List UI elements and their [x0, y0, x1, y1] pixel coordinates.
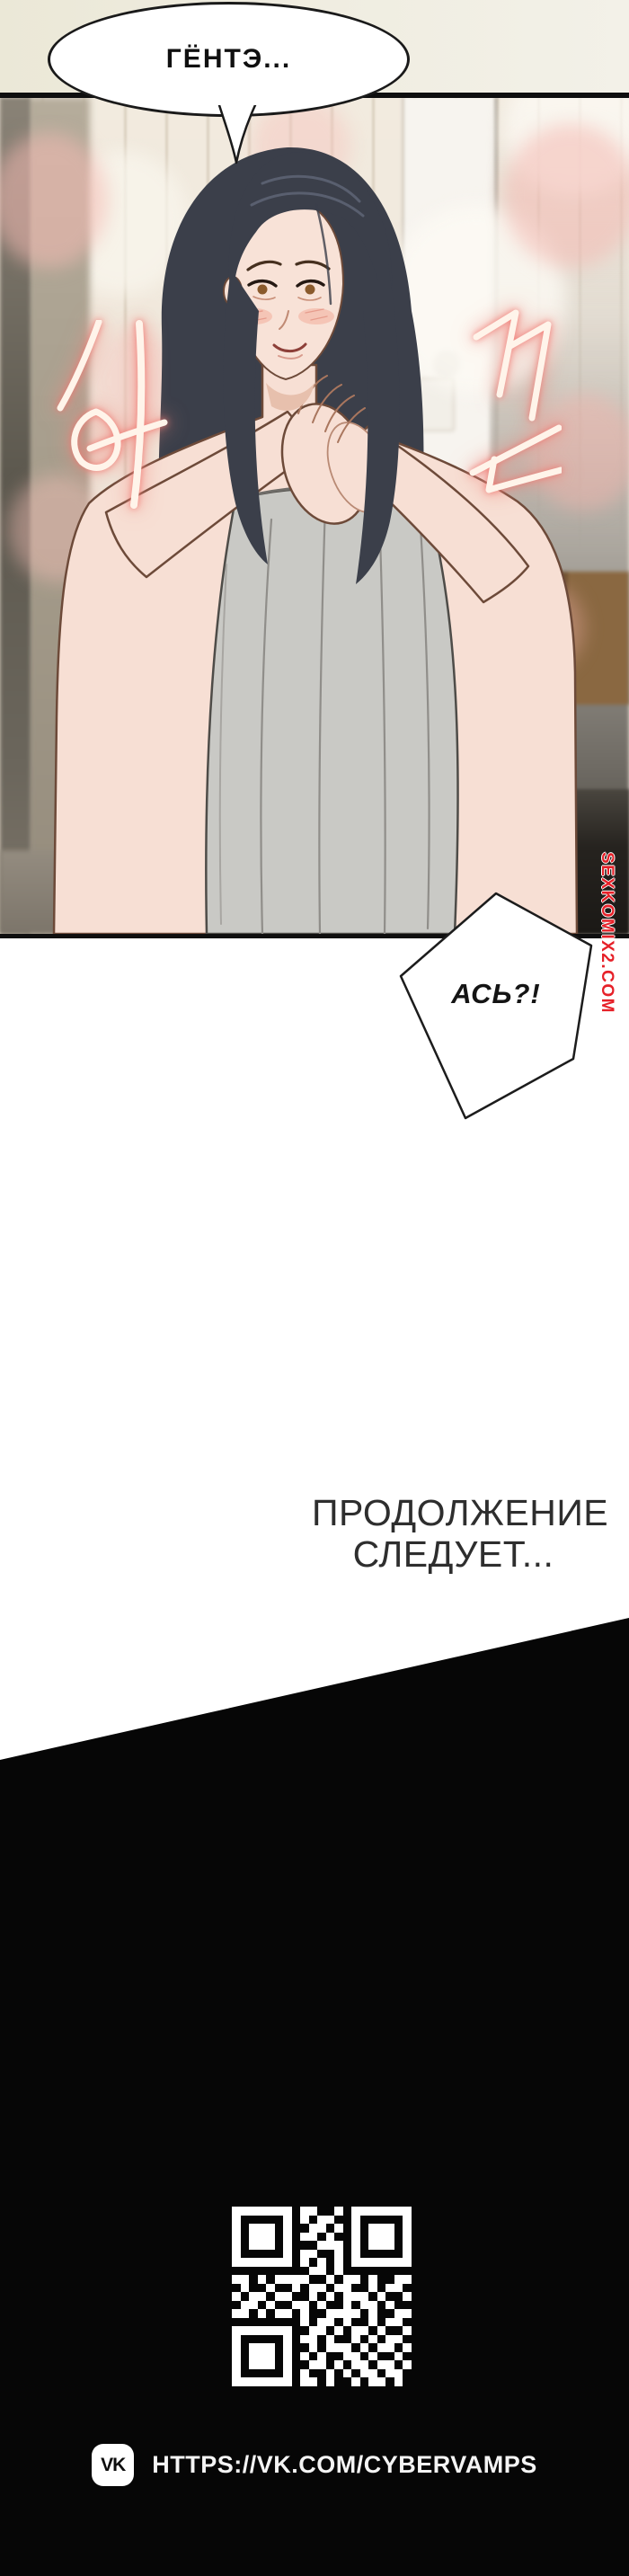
- vk-icon: VK: [92, 2444, 134, 2486]
- speech-bubble-top-text: ГЁНТЭ...: [166, 44, 291, 75]
- character-illustration: [0, 97, 629, 934]
- qr-code: [232, 2207, 412, 2386]
- speech-bubble-top: ГЁНТЭ...: [48, 2, 410, 117]
- vk-url-text: HTTPS://VK.COM/CYBERVAMPS: [152, 2451, 537, 2479]
- speech-bubble-tail: [212, 105, 262, 164]
- watermark-text: SEXKOMIX2.COM: [597, 852, 616, 1014]
- sfx-hwa-glyph: [49, 320, 171, 509]
- speech-bubble-reply-text: АСЬ?!: [394, 978, 598, 1010]
- footer-row: VK HTTPS://VK.COM/CYBERVAMPS: [0, 2444, 629, 2486]
- speech-bubble-reply: АСЬ?!: [394, 888, 598, 1124]
- to-be-continued-line1: ПРОДОЛЖЕНИЕ: [312, 1492, 595, 1533]
- footer-section: [0, 1618, 629, 2576]
- vk-icon-label: VK: [101, 2455, 125, 2476]
- sfx-kkeun-glyph: [467, 306, 562, 495]
- to-be-continued-text: ПРОДОЛЖЕНИЕ СЛЕДУЕТ...: [312, 1492, 595, 1575]
- to-be-continued-line2: СЛЕДУЕТ...: [312, 1533, 595, 1575]
- comic-panel: [0, 97, 629, 934]
- comic-page: ГЁНТЭ... SEXKOMIX2.COM АСЬ?! ПРОДОЛЖЕНИЕ…: [0, 0, 629, 2576]
